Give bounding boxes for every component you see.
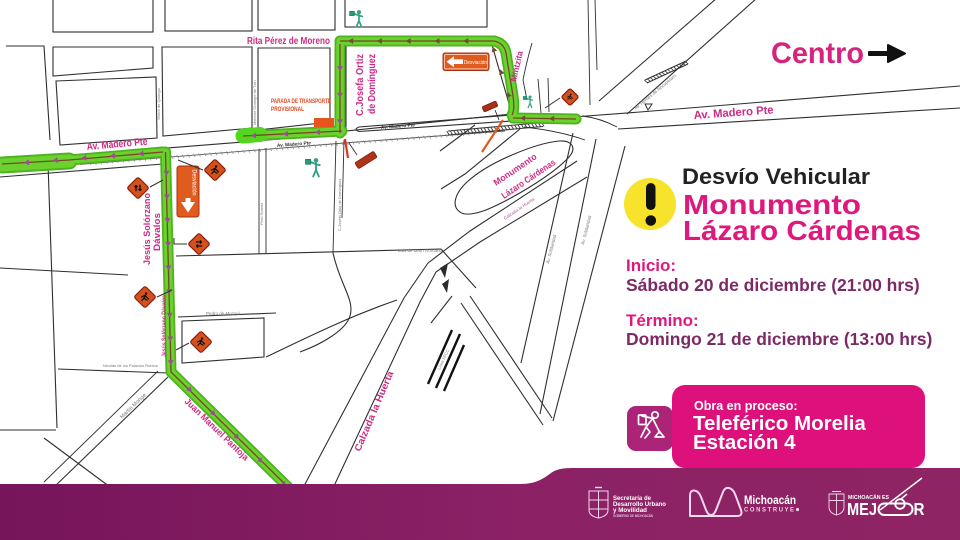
svg-text:Centro: Centro: [771, 37, 864, 70]
svg-text:C.Josefa Ortiz: C.Josefa Ortiz: [355, 54, 366, 116]
svg-text:R: R: [914, 499, 925, 519]
svg-text:Jesús Solórzano: Jesús Solórzano: [142, 193, 152, 265]
svg-text:C.Josefa Ortiz de Domínguez: C.Josefa Ortiz de Domínguez: [337, 179, 342, 231]
svg-text:Pedro de Mozqui: Pedro de Mozqui: [206, 311, 240, 316]
svg-text:PARADA DE TRANSPORTE: PARADA DE TRANSPORTE: [271, 98, 331, 105]
svg-text:Jesús Solórzano Dávalos: Jesús Solórzano Dávalos: [162, 294, 168, 357]
svg-text:Estación 4: Estación 4: [693, 431, 796, 454]
svg-text:Nicolás de los Palacios Rubios: Nicolás de los Palacios Rubios: [103, 363, 158, 368]
svg-text:MEJ: MEJ: [847, 499, 877, 519]
svg-text:Sábado 20 de diciembre (21:00: Sábado 20 de diciembre (21:00 hrs): [626, 275, 920, 295]
svg-text:Domingo 21 de diciembre (13:00: Domingo 21 de diciembre (13:00 hrs): [626, 329, 932, 349]
svg-text:GOBIERNO DE MICHOACÁN: GOBIERNO DE MICHOACÁN: [613, 514, 653, 518]
svg-text:Vasco de Quiroga: Vasco de Quiroga: [156, 88, 161, 120]
svg-text:de Domínguez: de Domínguez: [367, 54, 378, 114]
svg-text:Inicio:: Inicio:: [626, 256, 676, 275]
svg-text:y Movilidad: y Movilidad: [613, 507, 647, 514]
svg-text:Rita Pérez de Moreno: Rita Pérez de Moreno: [247, 35, 330, 47]
svg-text:Desviación: Desviación: [464, 60, 487, 66]
svg-text:PROVISIONAL: PROVISIONAL: [271, 106, 304, 113]
svg-text:Obra en proceso:: Obra en proceso:: [694, 399, 798, 413]
svg-text:Dávalos: Dávalos: [152, 213, 162, 251]
svg-text:Lázaro Cárdenas: Lázaro Cárdenas: [683, 215, 921, 246]
svg-text:Desviación: Desviación: [191, 170, 198, 196]
svg-text:Melchor Ocampo de Tzin: Melchor Ocampo de Tzin: [252, 80, 257, 125]
svg-text:Luis de León Romano: Luis de León Romano: [398, 248, 443, 253]
svg-text:Desvío Vehicular: Desvío Vehicular: [682, 164, 870, 189]
svg-text:Término:: Término:: [626, 311, 699, 330]
svg-text:C O N S T R U Y E: C O N S T R U Y E: [744, 507, 795, 514]
svg-text:Michoacán: Michoacán: [744, 495, 796, 507]
svg-text:Perú Suárez: Perú Suárez: [259, 203, 264, 225]
